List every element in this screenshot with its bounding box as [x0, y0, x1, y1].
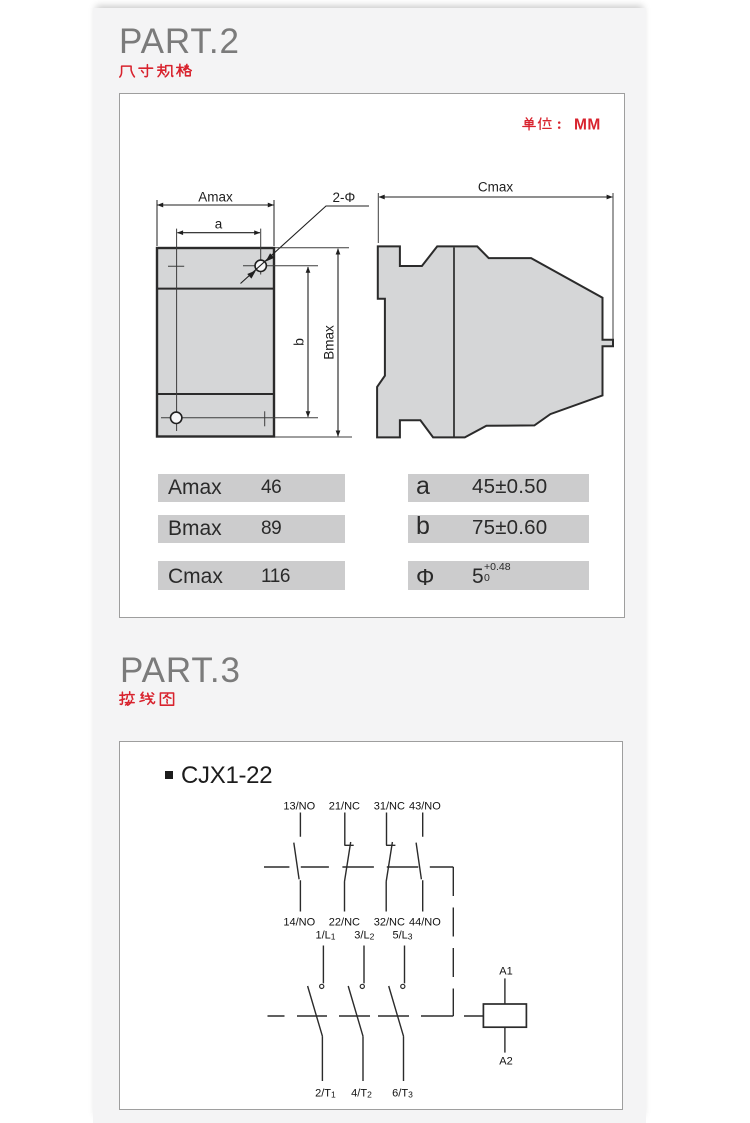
svg-text:b: b	[291, 338, 307, 346]
svg-text:1/L1: 1/L1	[315, 930, 335, 942]
svg-text:22/NC: 22/NC	[329, 917, 360, 929]
svg-text:2-Φ: 2-Φ	[333, 190, 356, 205]
svg-text:43/NO: 43/NO	[409, 801, 441, 813]
svg-text:2/T1: 2/T1	[315, 1088, 336, 1100]
svg-text:44/NO: 44/NO	[409, 917, 441, 929]
svg-text:31/NC: 31/NC	[374, 801, 405, 813]
svg-text:21/NC: 21/NC	[329, 801, 360, 813]
svg-text:5/L3: 5/L3	[392, 930, 412, 942]
svg-text:Amax: Amax	[198, 190, 233, 205]
svg-text:A1: A1	[499, 966, 512, 978]
svg-text:Bmax: Bmax	[322, 325, 337, 360]
svg-text:Cmax: Cmax	[478, 180, 514, 195]
svg-text:A2: A2	[499, 1056, 512, 1068]
svg-text:6/T3: 6/T3	[392, 1088, 413, 1100]
svg-text:3/L2: 3/L2	[354, 930, 374, 942]
svg-text:14/NO: 14/NO	[283, 917, 315, 929]
svg-text:a: a	[215, 217, 223, 232]
svg-text:32/NC: 32/NC	[374, 917, 405, 929]
svg-text:4/T2: 4/T2	[351, 1088, 372, 1100]
svg-text:13/NO: 13/NO	[283, 801, 315, 813]
